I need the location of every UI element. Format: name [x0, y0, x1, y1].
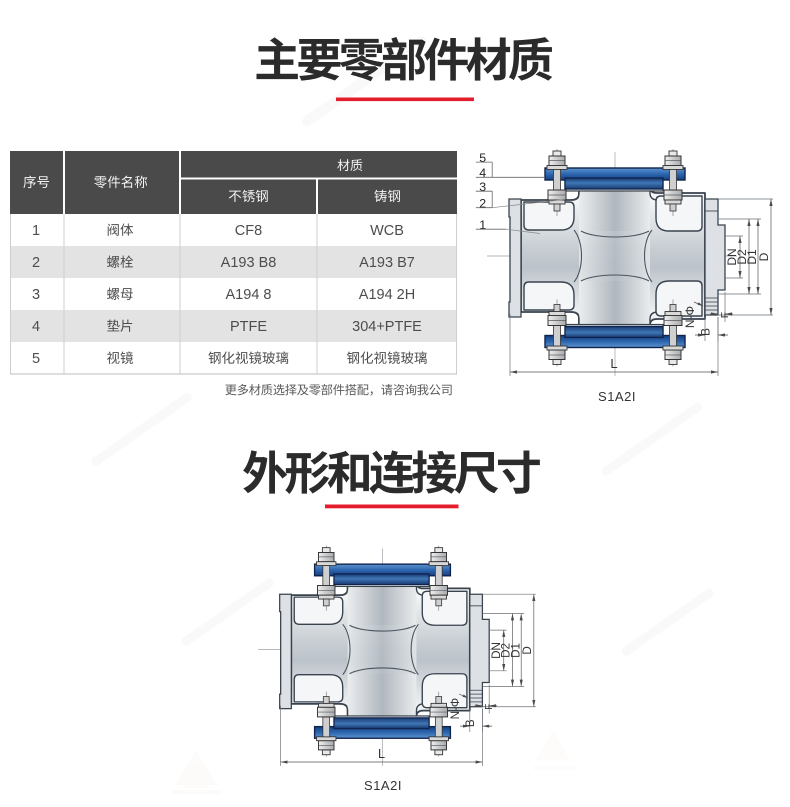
- svg-text:D: D: [521, 646, 534, 654]
- svg-text:S1A2I: S1A2I: [598, 389, 636, 404]
- svg-text:A194 2H: A194 2H: [359, 287, 415, 303]
- svg-text:1: 1: [32, 223, 40, 239]
- svg-text:PTFE: PTFE: [230, 319, 267, 335]
- svg-text:4: 4: [479, 166, 486, 180]
- svg-text:F: F: [484, 704, 495, 710]
- svg-text:L: L: [610, 356, 617, 371]
- svg-text:D: D: [757, 252, 771, 261]
- svg-text:B: B: [699, 328, 713, 336]
- svg-text:3: 3: [32, 287, 40, 303]
- svg-text:A193 B8: A193 B8: [221, 255, 277, 271]
- svg-text:N-Φ: N-Φ: [449, 698, 462, 720]
- svg-text:S1A2I: S1A2I: [364, 778, 402, 793]
- svg-text:2: 2: [479, 197, 486, 211]
- svg-text:CF8: CF8: [235, 223, 262, 239]
- svg-text:1: 1: [479, 218, 486, 232]
- svg-text:B: B: [464, 719, 477, 727]
- svg-text:4: 4: [32, 319, 40, 335]
- svg-text:L: L: [378, 747, 385, 761]
- svg-text:2: 2: [32, 255, 40, 271]
- svg-text:F: F: [719, 312, 731, 318]
- svg-text:A194 8: A194 8: [226, 287, 272, 303]
- svg-text:304+PTFE: 304+PTFE: [352, 319, 422, 335]
- svg-text:A193 B7: A193 B7: [359, 255, 415, 271]
- svg-text:3: 3: [479, 180, 486, 194]
- svg-text:5: 5: [479, 151, 486, 165]
- svg-text:N-Φ: N-Φ: [683, 306, 697, 328]
- svg-text:5: 5: [32, 351, 40, 367]
- svg-text:WCB: WCB: [370, 223, 404, 239]
